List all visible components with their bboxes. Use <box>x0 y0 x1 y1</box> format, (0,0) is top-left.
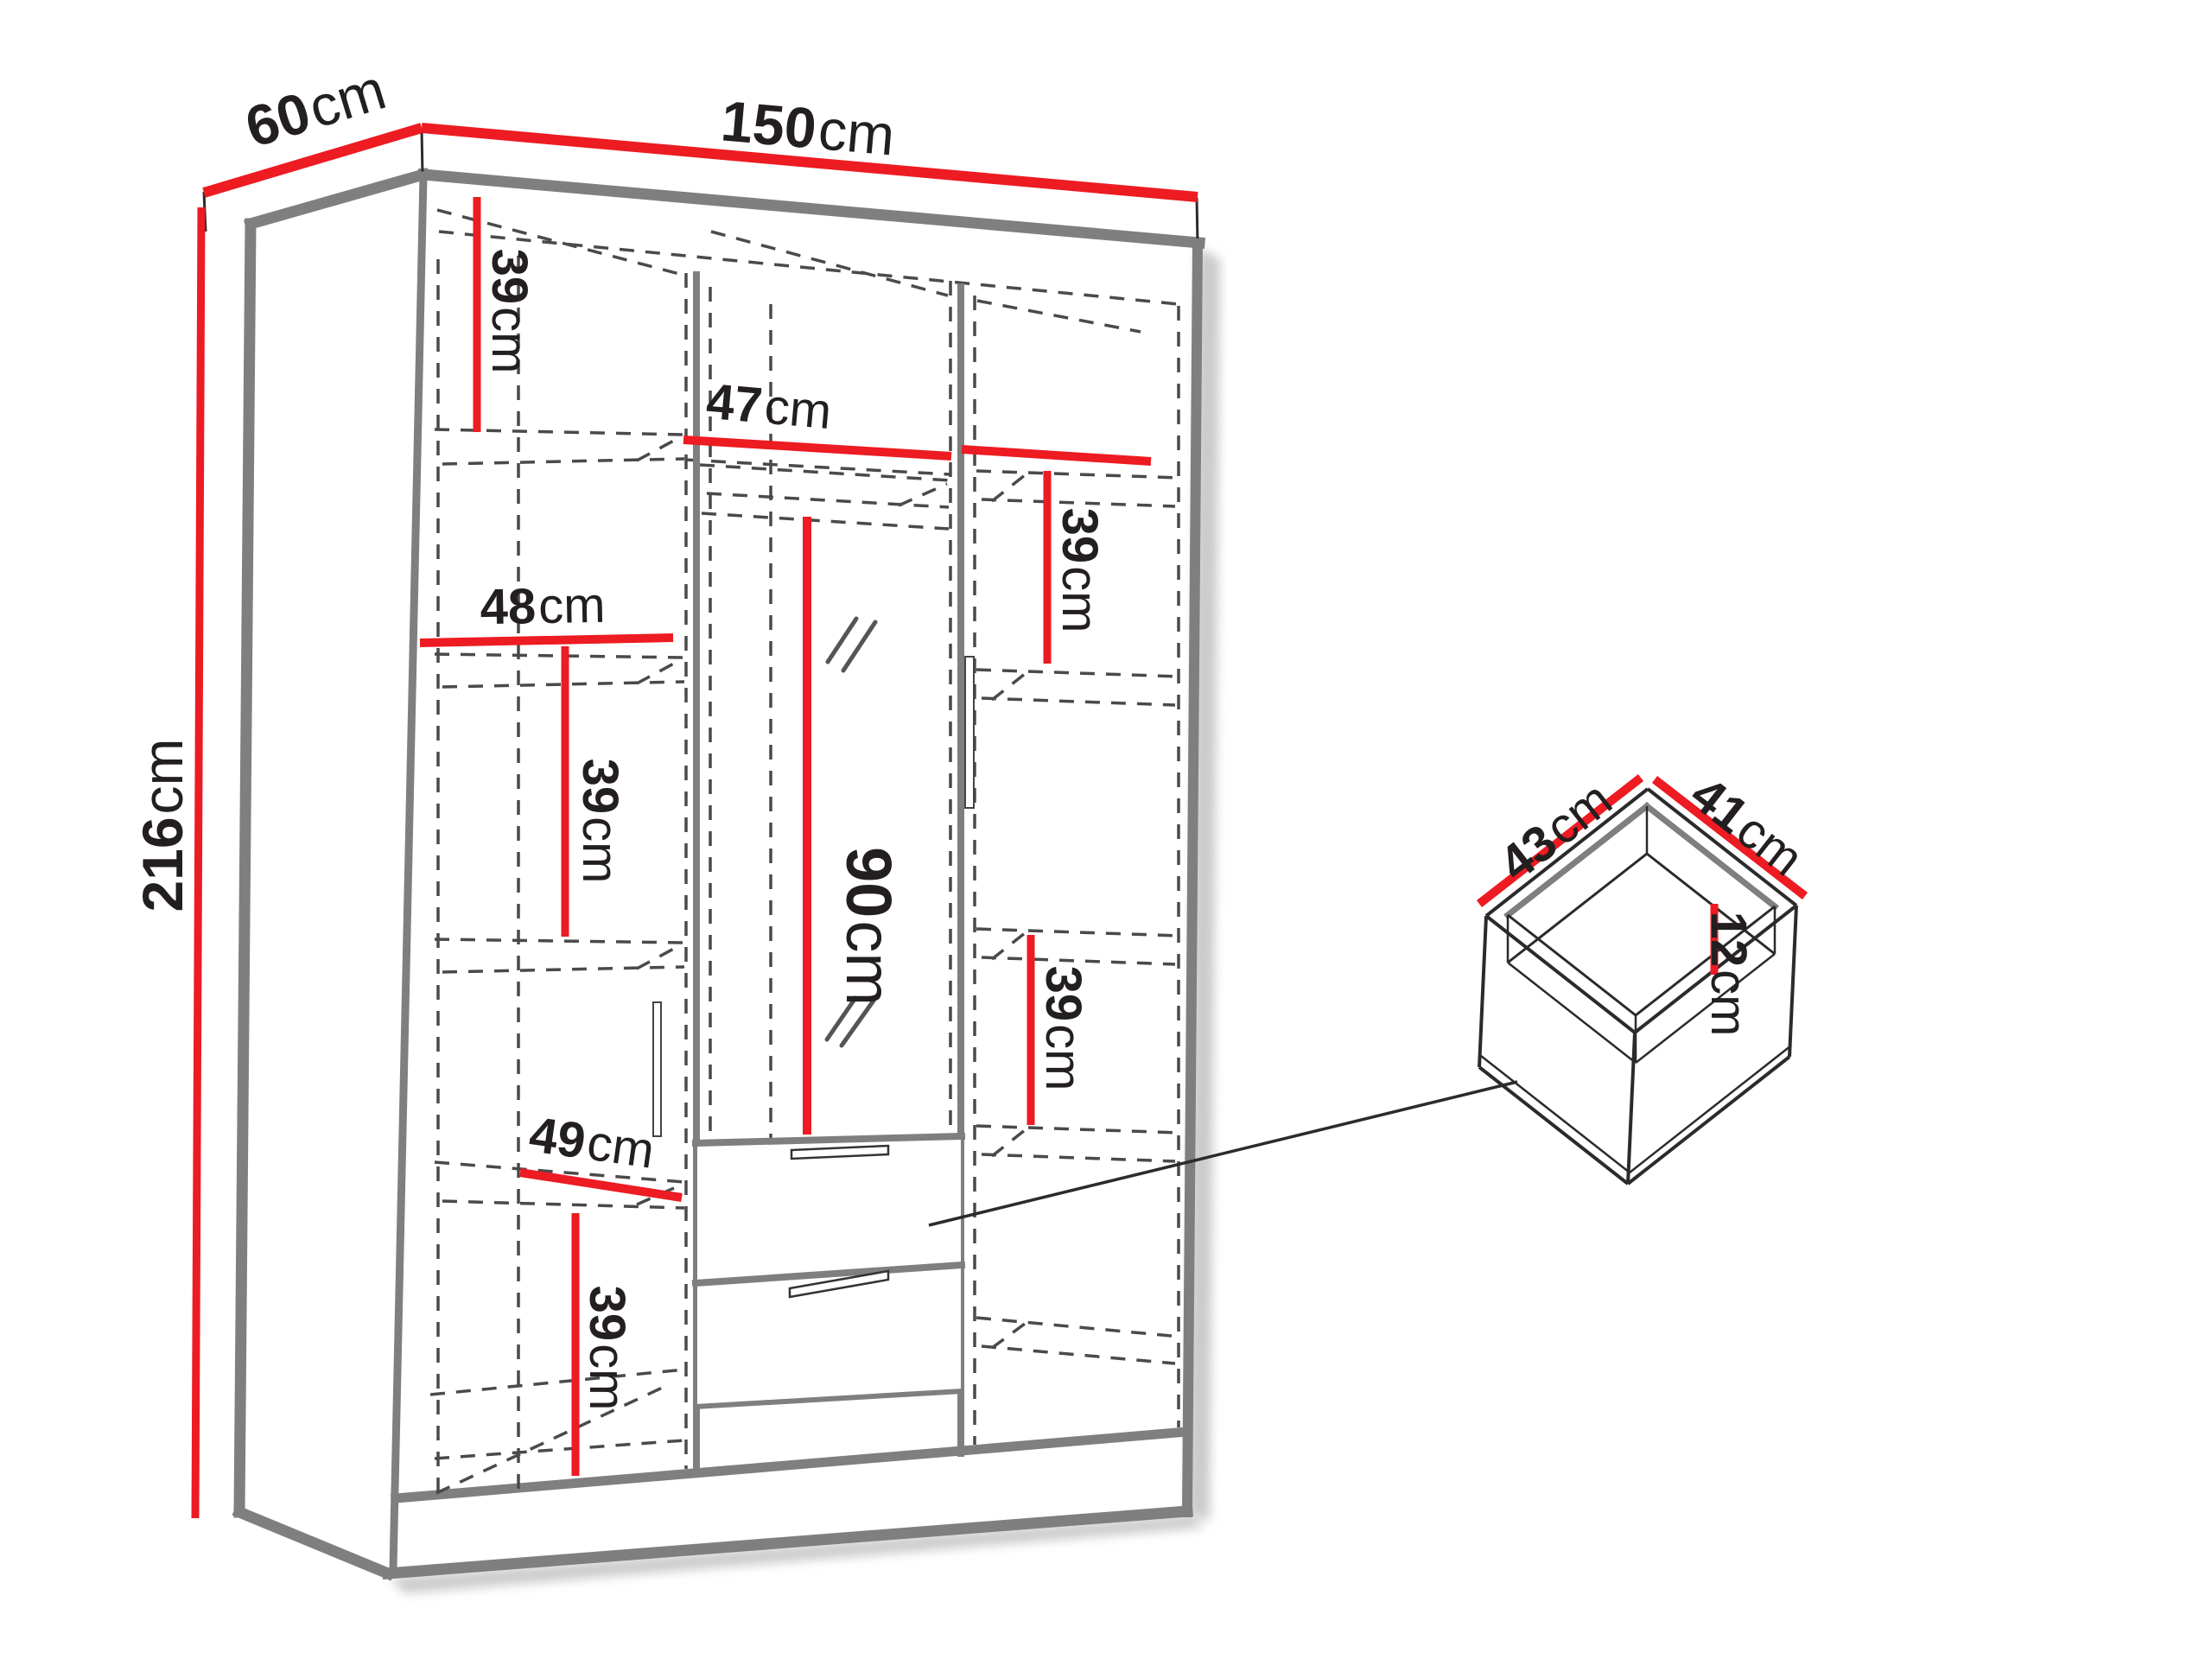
diagram-page: 60cm 150cm 216cm 39cm 47cm 39cm 48cm 39c… <box>0 0 2212 1659</box>
shelf-front <box>435 429 684 435</box>
shelf-back <box>442 1201 684 1208</box>
body-bottom-right <box>1628 1057 1789 1184</box>
dim-line-right-shelf <box>962 449 1151 461</box>
label-left-48: 48cm <box>480 576 606 635</box>
callout-leader-line <box>929 1082 1517 1225</box>
shelf-diagonal <box>637 659 682 683</box>
shelf-diagonal <box>992 933 1025 959</box>
floor-front-dashed <box>435 1440 684 1459</box>
dim-line-left-48 <box>420 638 673 643</box>
shelf-diagonal <box>992 475 1025 501</box>
shelf-front <box>976 1126 1180 1133</box>
label-left-39-mid: 39cm <box>573 759 629 884</box>
shelf-front <box>976 670 1180 677</box>
label-right-39-mid: 39cm <box>1036 966 1092 1091</box>
shelf-back <box>707 493 949 507</box>
top-right-corner-tick <box>1197 198 1198 243</box>
body-corner-front <box>1628 1033 1635 1184</box>
shelf-front <box>435 654 684 658</box>
label-right-39-top: 39cm <box>1052 508 1109 633</box>
shelf-back <box>982 1346 1175 1363</box>
shelf-diagonal <box>992 1130 1025 1156</box>
left-bottom-edge <box>239 1512 388 1573</box>
body-bottom-left <box>1479 1067 1628 1184</box>
ceiling-back-edge <box>439 232 1179 304</box>
shadow-bottom <box>391 1515 1205 1593</box>
shelf-front <box>976 471 1180 478</box>
drawer-detail-drawing: 43cm 41cm 12cm <box>1479 766 1814 1184</box>
shelf-front <box>976 1318 1180 1337</box>
body-rail-left <box>1481 1056 1630 1173</box>
dim-line-height-216 <box>195 207 201 1518</box>
shelf-back <box>982 1154 1175 1161</box>
shelves-left-column <box>435 429 684 1208</box>
shelf-back <box>982 698 1175 705</box>
shelf-front <box>976 929 1180 936</box>
shelf-back <box>982 499 1175 506</box>
shelf-back <box>442 967 684 972</box>
shelves-middle-column <box>685 460 950 529</box>
body-corner-right <box>1789 906 1796 1057</box>
ceiling-diagonal <box>711 232 948 296</box>
floor-back-edge <box>430 1370 684 1395</box>
ceiling-diagonal <box>977 301 1141 332</box>
shelf-front <box>702 513 949 529</box>
shelf-diagonal <box>992 1324 1025 1348</box>
left-back-edge <box>239 224 251 1512</box>
shelf-diagonal <box>637 436 682 461</box>
shelf-back <box>982 957 1175 964</box>
shelf-diagonal <box>992 674 1025 700</box>
body-corner-left <box>1479 916 1486 1067</box>
wardrobe-dimension-diagram: 60cm 150cm 216cm 39cm 47cm 39cm 48cm 39c… <box>0 0 2212 1659</box>
label-height-216cm: 216cm <box>130 738 194 912</box>
mirror-edge-strip <box>965 657 974 808</box>
left-front-edge <box>393 175 423 1569</box>
label-mid-90: 90cm <box>834 847 906 1006</box>
drawers <box>696 1136 962 1407</box>
mirror-edge-strip <box>653 1002 661 1136</box>
floor-front-edge <box>396 1432 1187 1498</box>
dim-line-mid-47 <box>683 440 951 456</box>
plinth-bottom-edge <box>388 1511 1187 1573</box>
shelf-back <box>442 459 684 464</box>
label-left-39-top: 39cm <box>482 249 538 374</box>
shelf-front <box>435 939 684 943</box>
body-rail-right <box>1630 1046 1791 1173</box>
shelf-diagonal <box>899 484 947 505</box>
label-mid-47: 47cm <box>704 372 834 439</box>
shelf-diagonal <box>637 944 682 969</box>
label-left-39-bottom: 39cm <box>580 1286 636 1411</box>
label-drawer-12: 12cm <box>1701 912 1758 1037</box>
label-left-49: 49cm <box>526 1106 658 1179</box>
top-corner-tick <box>422 130 423 175</box>
